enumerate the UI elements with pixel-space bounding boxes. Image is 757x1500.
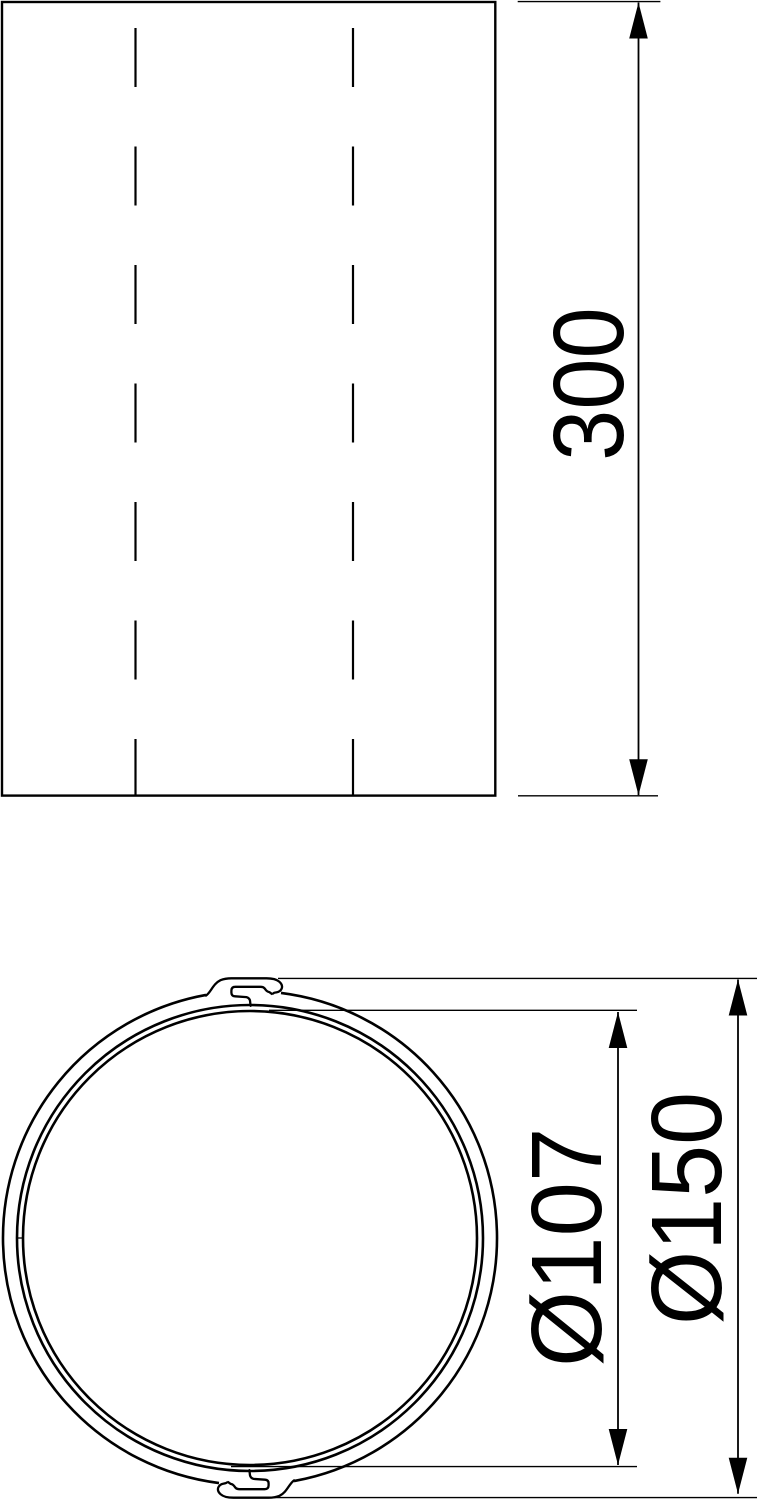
svg-text:300: 300 bbox=[533, 307, 645, 461]
svg-text:Ø150: Ø150 bbox=[631, 1092, 743, 1325]
svg-text:Ø107: Ø107 bbox=[511, 1128, 623, 1367]
